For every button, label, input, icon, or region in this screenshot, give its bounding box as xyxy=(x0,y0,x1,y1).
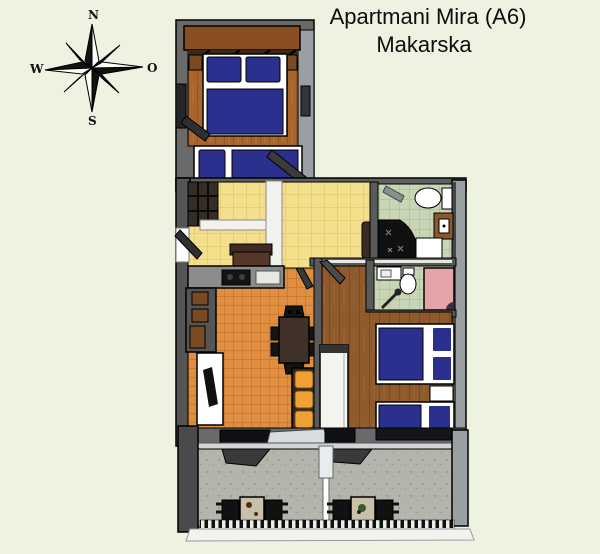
pillow xyxy=(432,327,452,352)
pillow xyxy=(246,57,280,82)
terrace-wall-left xyxy=(178,426,198,532)
bathroom1-toilet xyxy=(415,188,452,209)
kitchen-counter-top xyxy=(188,266,284,288)
title-line-2: Makarska xyxy=(376,32,472,57)
hall-partition-horizontal xyxy=(200,220,268,230)
terrace-ledge xyxy=(186,529,474,541)
bedroom2-wardrobe xyxy=(320,345,348,433)
blanket xyxy=(379,328,423,380)
bedroom1-wardrobe xyxy=(184,26,300,50)
kitchen-sink xyxy=(256,271,280,284)
compass-label-west: W xyxy=(29,62,44,76)
bathroom2-wall-left xyxy=(366,260,374,312)
bedroom2-window xyxy=(376,428,452,440)
blanket xyxy=(207,89,283,134)
living-window-right xyxy=(325,428,355,442)
floor-plan-image: N W O S Apartmani Mira (A6) Makarska xyxy=(0,0,600,554)
hall-sofa xyxy=(230,244,272,266)
room-living-kitchen xyxy=(186,266,317,444)
bathroom2-sink xyxy=(377,267,401,280)
pillow xyxy=(207,57,241,82)
bedroom1-double-bed xyxy=(203,54,287,136)
title-line-1: Apartmani Mira (A6) xyxy=(330,4,527,29)
kitchen-stove xyxy=(222,270,250,285)
compass-label-east: O xyxy=(147,61,157,75)
room-bedroom-1 xyxy=(176,20,314,190)
kitchen-counter-left xyxy=(186,288,216,352)
compass-label-south: S xyxy=(88,114,97,128)
hall-wardrobe xyxy=(188,182,218,226)
terrace-railing xyxy=(186,520,474,541)
blanket xyxy=(379,405,421,431)
bathroom1-sink xyxy=(434,213,453,239)
compass-label-north: N xyxy=(88,8,99,22)
pillow xyxy=(428,405,451,431)
terrace-wall-right xyxy=(452,430,468,526)
bathroom1-wall xyxy=(370,182,378,262)
bedroom1-nightstand-left xyxy=(189,55,202,70)
pillow xyxy=(199,150,225,181)
orange-sofa xyxy=(292,368,316,432)
floor-plan-page: N W O S Apartmani Mira (A6) Makarska xyxy=(0,0,600,554)
living-white-bench xyxy=(197,353,223,425)
bedroom2-double-bed xyxy=(376,324,454,384)
bedroom1-window-east xyxy=(301,86,310,116)
room-bathroom-1 xyxy=(370,182,453,262)
dining-table xyxy=(279,317,309,363)
pillow xyxy=(432,356,452,381)
living-window-left xyxy=(220,430,270,443)
bathroom2-pink-shower-tray xyxy=(424,268,454,310)
wall-sill xyxy=(316,260,452,263)
room-entry-hall xyxy=(175,181,378,270)
chair xyxy=(284,306,304,317)
bedroom2-nightstand xyxy=(430,386,453,401)
